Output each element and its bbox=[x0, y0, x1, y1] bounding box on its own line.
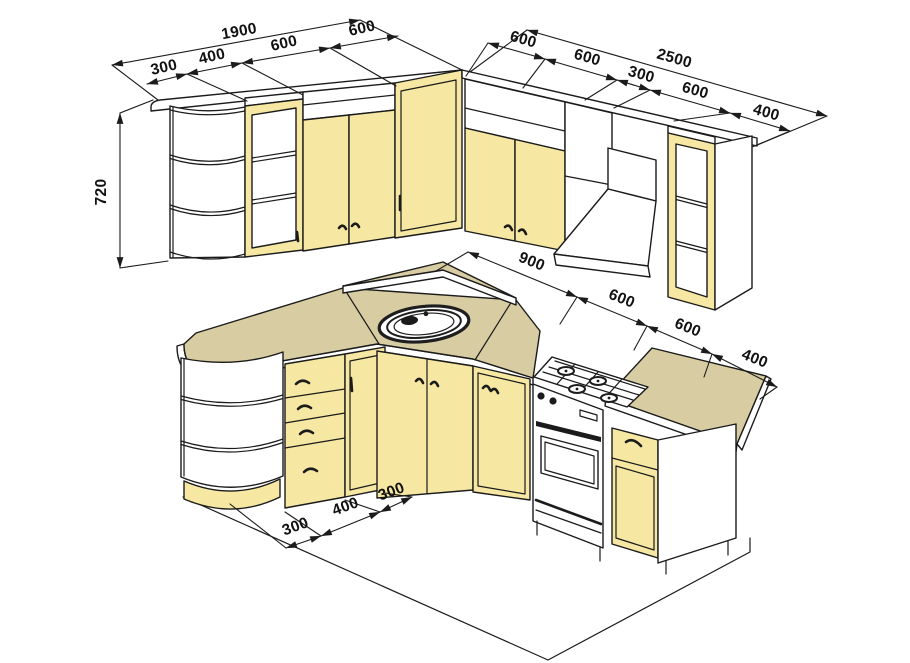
base-corner-sink-cabinet bbox=[377, 351, 473, 498]
base-cabinets-left-wall bbox=[181, 347, 530, 509]
cabinet-side-panel bbox=[715, 136, 752, 310]
upper-cabinets-right-wall bbox=[462, 70, 757, 310]
upper-open-corner-shelf-unit bbox=[170, 106, 245, 259]
dim-label-height: 720 bbox=[93, 179, 110, 206]
upper-glass-cabinet-right bbox=[668, 126, 752, 310]
end-cabinet-side-panel bbox=[658, 424, 736, 563]
upper-corner-cabinet bbox=[395, 70, 462, 238]
upper-glass-cabinet-left bbox=[245, 92, 303, 257]
door-handle bbox=[351, 378, 352, 391]
dim-label: 600 bbox=[508, 28, 538, 52]
dim-label: 600 bbox=[680, 79, 710, 103]
upper-double-door-cabinet-left bbox=[303, 83, 395, 251]
kitchen-isometric-drawing: 1900 300 400 600 600 2500 600 600 300 60… bbox=[0, 0, 910, 663]
base-drawer-unit bbox=[285, 354, 345, 508]
upper-cabinets-left-wall bbox=[151, 70, 462, 259]
dim-label: 600 bbox=[347, 17, 377, 40]
dim-label: 600 bbox=[572, 46, 602, 70]
upper-double-door-cabinet-right bbox=[465, 79, 565, 251]
dim-label: 600 bbox=[606, 286, 637, 312]
dim-label: 400 bbox=[739, 346, 770, 372]
base-door-cabinet-right-wall bbox=[473, 366, 530, 500]
stove-knob bbox=[537, 392, 544, 399]
base-open-corner-shelf-unit bbox=[181, 352, 283, 509]
dim-label: 600 bbox=[672, 315, 703, 341]
dim-label: 900 bbox=[516, 249, 547, 275]
dim-label: 300 bbox=[280, 514, 311, 539]
kitchen-drawing-page: 1900 300 400 600 600 2500 600 600 300 60… bbox=[0, 0, 910, 663]
dimension-upper-height: 720 bbox=[93, 100, 168, 268]
dim-label: 300 bbox=[149, 56, 179, 79]
stove-knob bbox=[549, 397, 556, 404]
door-handle bbox=[297, 232, 298, 241]
